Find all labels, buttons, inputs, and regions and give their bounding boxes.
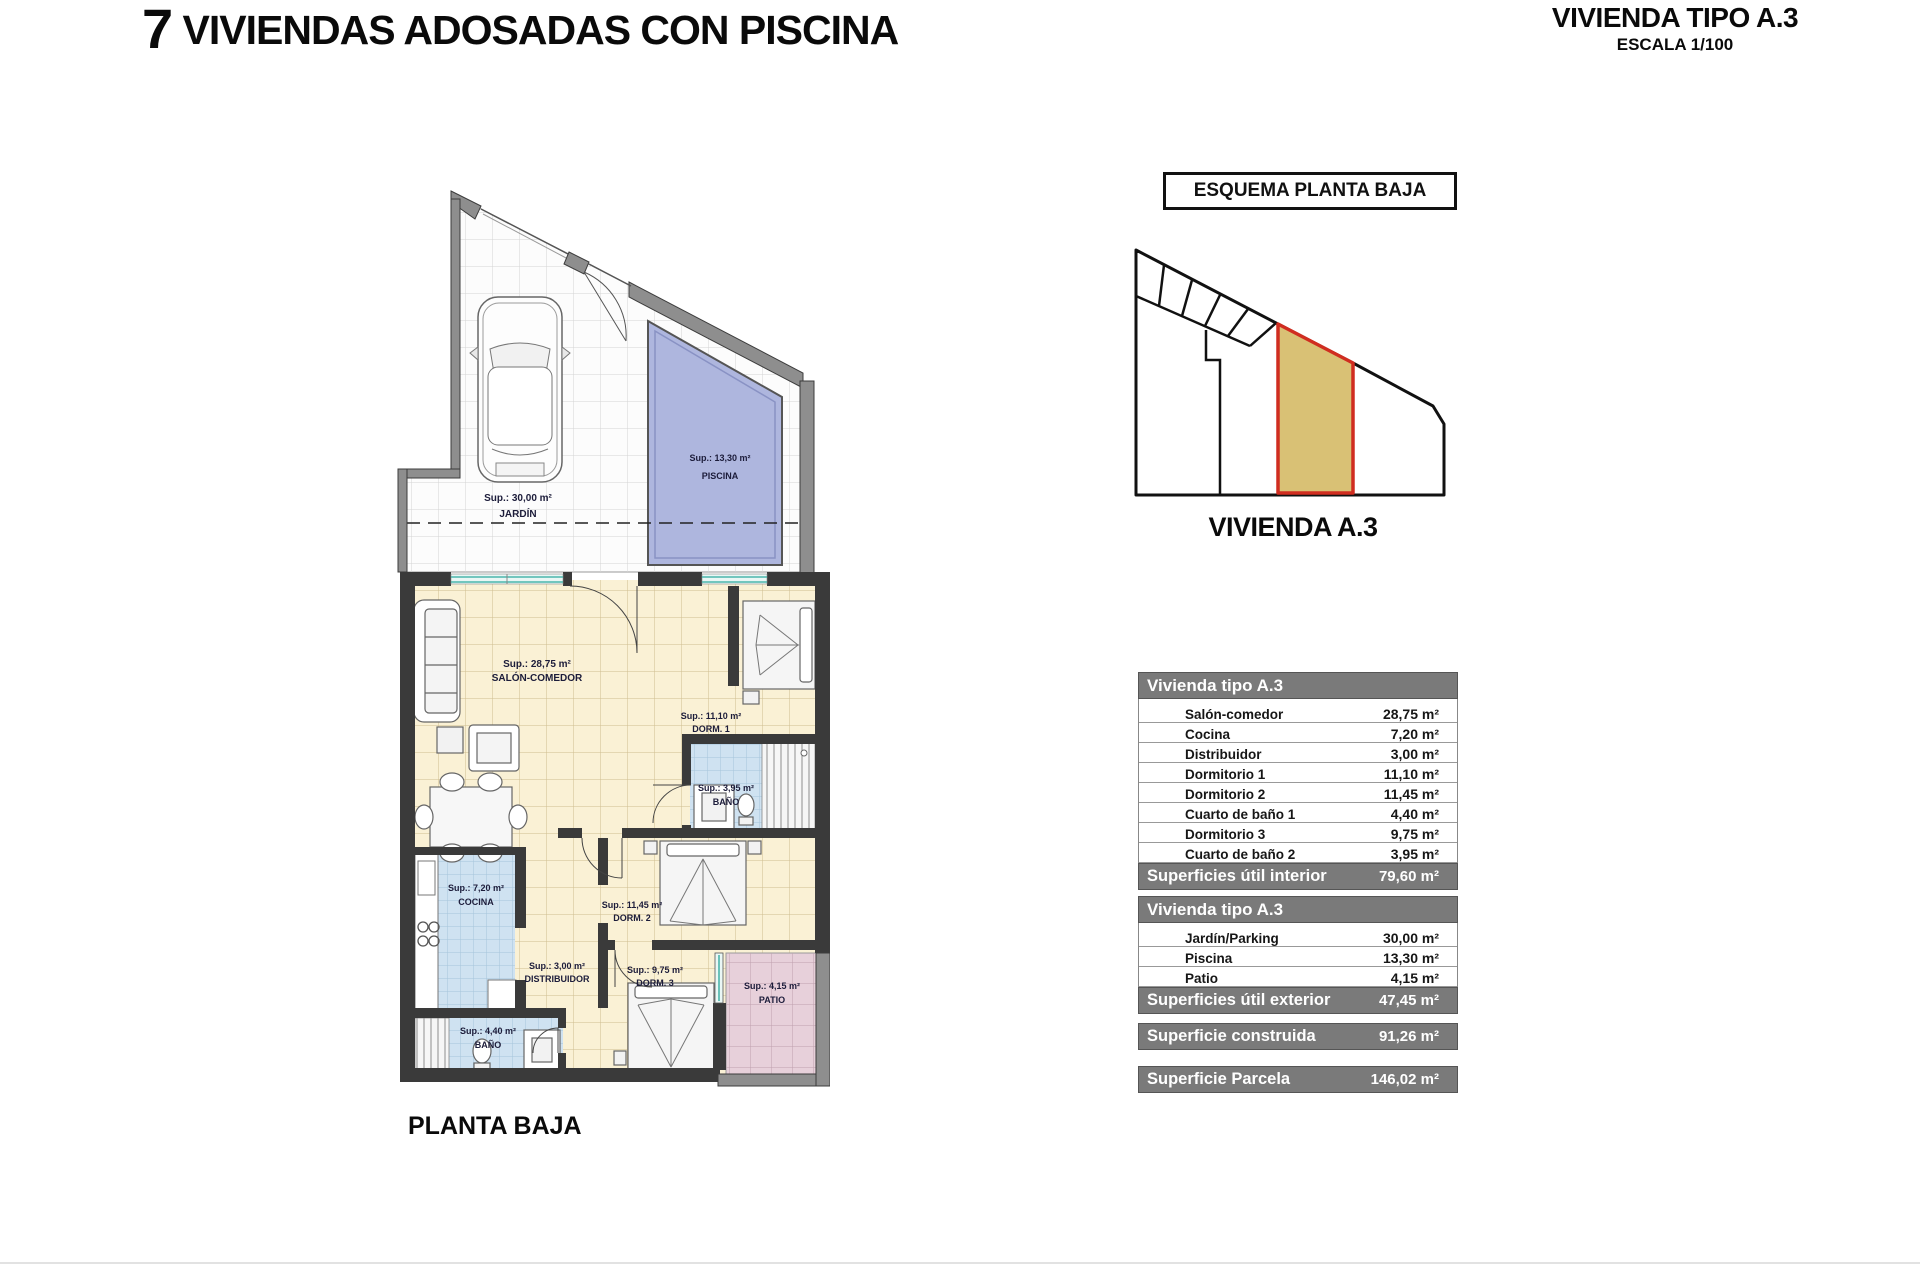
interior-table-body: Salón-comedor28,75 m² Cocina7,20 m² Dist…	[1138, 699, 1458, 863]
bano2-name-label: BAÑO	[475, 1040, 502, 1050]
sheet-scale: ESCALA 1/100	[1500, 35, 1850, 55]
bedroom-2-furniture	[644, 841, 761, 925]
table-row: Cocina7,20 m²	[1139, 723, 1457, 743]
esquema-caption: VIVIENDA A.3	[1128, 512, 1458, 543]
dorm1-sup-label: Sup.: 11,10 m²	[681, 711, 742, 721]
dorm2-sup-label: Sup.: 11,45 m²	[602, 900, 663, 910]
bano2-sup-label: Sup.: 4,40 m²	[460, 1026, 516, 1036]
piscina-name-label: PISCINA	[702, 471, 739, 481]
superficie-construida-bar: Superficie construida 91,26 m²	[1138, 1023, 1458, 1050]
car-icon	[470, 297, 570, 482]
table-row: Distribuidor3,00 m²	[1139, 743, 1457, 763]
bedroom-3-furniture	[614, 983, 714, 1069]
table-row: Jardín/Parking30,00 m²	[1139, 927, 1457, 947]
bedroom-1-furniture	[743, 601, 815, 704]
kitchen-floor	[415, 853, 516, 1013]
dorm1-name-label: DORM. 1	[692, 724, 730, 734]
sheet-title-block: VIVIENDA TIPO A.3 ESCALA 1/100	[1500, 2, 1850, 55]
floor-plan: Sup.: 30,00 m² JARDÍN Sup.: 13,30 m² PIS…	[330, 185, 830, 1115]
exterior-areas-table: Vivienda tipo A.3 Jardín/Parking30,00 m²…	[1138, 896, 1458, 1014]
table-row: Salón-comedor28,75 m²	[1139, 703, 1457, 723]
interior-areas-table: Vivienda tipo A.3 Salón-comedor28,75 m² …	[1138, 672, 1458, 890]
exterior-table-footer: Superficies útil exterior 47,45 m²	[1138, 987, 1458, 1014]
bano1-sup-label: Sup.: 3,95 m²	[698, 783, 754, 793]
page-title-text: VIVIENDAS ADOSADAS CON PISCINA	[172, 7, 898, 53]
table-row: Dormitorio 111,10 m²	[1139, 763, 1457, 783]
table-row: Patio4,15 m²	[1139, 967, 1457, 987]
page-title-number: 7	[142, 0, 172, 60]
table-row: Piscina13,30 m²	[1139, 947, 1457, 967]
table-row: Cuarto de baño 23,95 m²	[1139, 843, 1457, 863]
salon-name-label: SALÓN-COMEDOR	[492, 671, 583, 684]
exterior-table-header: Vivienda tipo A.3	[1138, 896, 1458, 923]
exterior-table-body: Jardín/Parking30,00 m² Piscina13,30 m² P…	[1138, 923, 1458, 987]
piscina-sup-label: Sup.: 13,30 m²	[689, 453, 750, 463]
jardin-sup-label: Sup.: 30,00 m²	[484, 493, 552, 504]
page: 7 VIVIENDAS ADOSADAS CON PISCINA VIVIEND…	[0, 0, 1920, 1280]
page-bottom-edge	[0, 1262, 1920, 1264]
distribuidor-name-label: DISTRIBUIDOR	[525, 974, 591, 984]
dorm2-name-label: DORM. 2	[613, 913, 651, 923]
dorm3-sup-label: Sup.: 9,75 m²	[627, 965, 683, 975]
patio-floor	[726, 953, 818, 1078]
table-row: Cuarto de baño 14,40 m²	[1139, 803, 1457, 823]
interior-table-footer: Superficies útil interior 79,60 m²	[1138, 863, 1458, 890]
patio-name-label: PATIO	[759, 995, 785, 1005]
esquema-site-plan	[1128, 238, 1458, 508]
cocina-sup-label: Sup.: 7,20 m²	[448, 883, 504, 893]
esquema-label: ESQUEMA PLANTA BAJA	[1194, 180, 1427, 202]
distribuidor-sup-label: Sup.: 3,00 m²	[529, 961, 585, 971]
patio-sup-label: Sup.: 4,15 m²	[744, 981, 800, 991]
table-row: Dormitorio 211,45 m²	[1139, 783, 1457, 803]
esquema-highlight-parcel	[1278, 324, 1353, 493]
planta-baja-caption: PLANTA BAJA	[408, 1112, 582, 1141]
cocina-name-label: COCINA	[458, 897, 494, 907]
interior-table-header: Vivienda tipo A.3	[1138, 672, 1458, 699]
dorm3-name-label: DORM. 3	[636, 978, 674, 988]
esquema-label-box: ESQUEMA PLANTA BAJA	[1163, 172, 1457, 210]
jardin-name-label: JARDÍN	[499, 507, 536, 520]
sheet-title: VIVIENDA TIPO A.3	[1500, 2, 1850, 34]
salon-sup-label: Sup.: 28,75 m²	[503, 659, 571, 670]
page-title: 7 VIVIENDAS ADOSADAS CON PISCINA	[142, 0, 898, 61]
superficie-parcela-bar: Superficie Parcela 146,02 m²	[1138, 1066, 1458, 1093]
bano1-name-label: BAÑO	[713, 797, 740, 807]
table-row: Dormitorio 39,75 m²	[1139, 823, 1457, 843]
